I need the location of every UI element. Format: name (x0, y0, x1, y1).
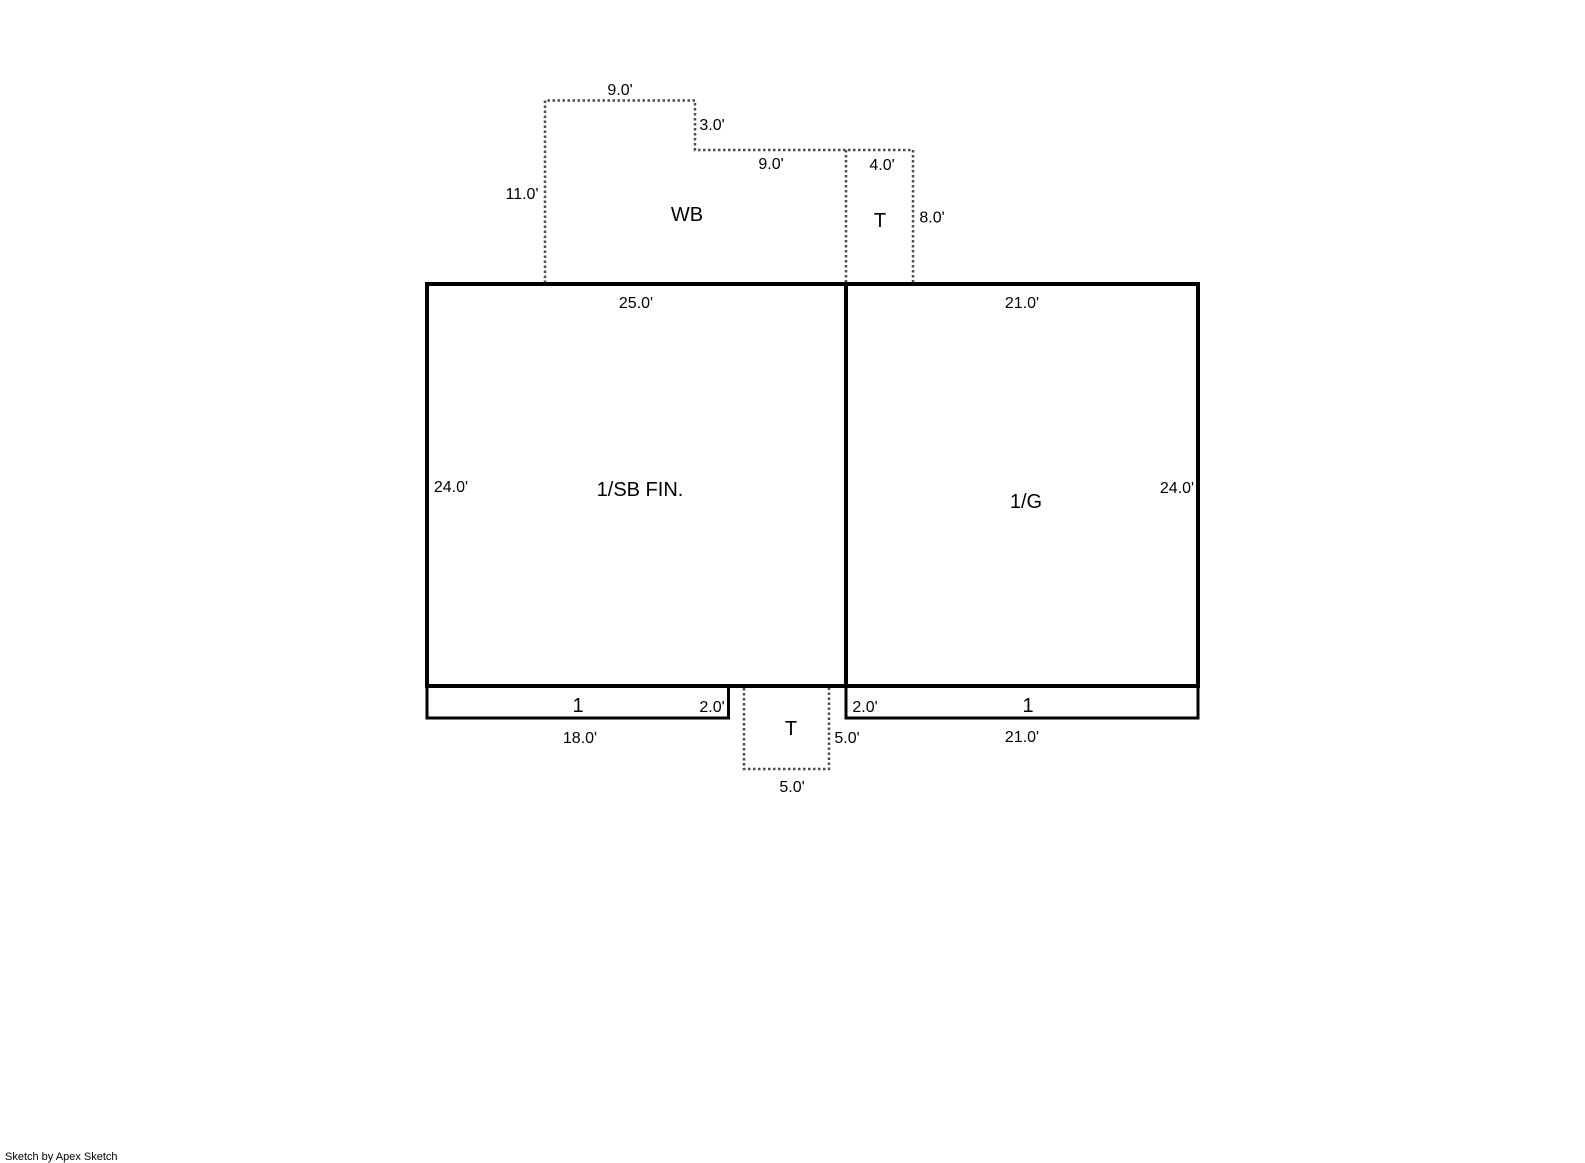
svg-text:25.0': 25.0' (619, 295, 653, 312)
svg-text:21.0': 21.0' (1005, 729, 1039, 746)
svg-text:T: T (785, 718, 797, 740)
svg-text:WB: WB (671, 204, 703, 226)
svg-text:9.0': 9.0' (607, 82, 632, 99)
svg-text:18.0': 18.0' (563, 730, 597, 747)
svg-text:T: T (874, 210, 886, 232)
svg-text:Sketch by Apex Sketch: Sketch by Apex Sketch (5, 1151, 118, 1163)
svg-text:9.0': 9.0' (758, 156, 783, 173)
svg-text:5.0': 5.0' (779, 779, 804, 796)
svg-text:1: 1 (572, 695, 583, 717)
svg-text:11.0': 11.0' (505, 186, 538, 203)
svg-text:5.0': 5.0' (834, 730, 859, 747)
svg-text:1: 1 (1022, 695, 1033, 717)
svg-text:2.0': 2.0' (699, 699, 724, 716)
svg-text:2.0': 2.0' (852, 699, 877, 716)
svg-text:8.0': 8.0' (919, 210, 944, 227)
svg-text:1/G: 1/G (1010, 491, 1042, 513)
svg-text:4.0': 4.0' (869, 157, 894, 174)
svg-text:24.0': 24.0' (434, 479, 468, 496)
svg-text:3.0': 3.0' (699, 117, 724, 134)
svg-text:1/SB FIN.: 1/SB FIN. (597, 479, 684, 501)
svg-text:24.0': 24.0' (1160, 480, 1194, 497)
svg-text:21.0': 21.0' (1005, 295, 1039, 312)
